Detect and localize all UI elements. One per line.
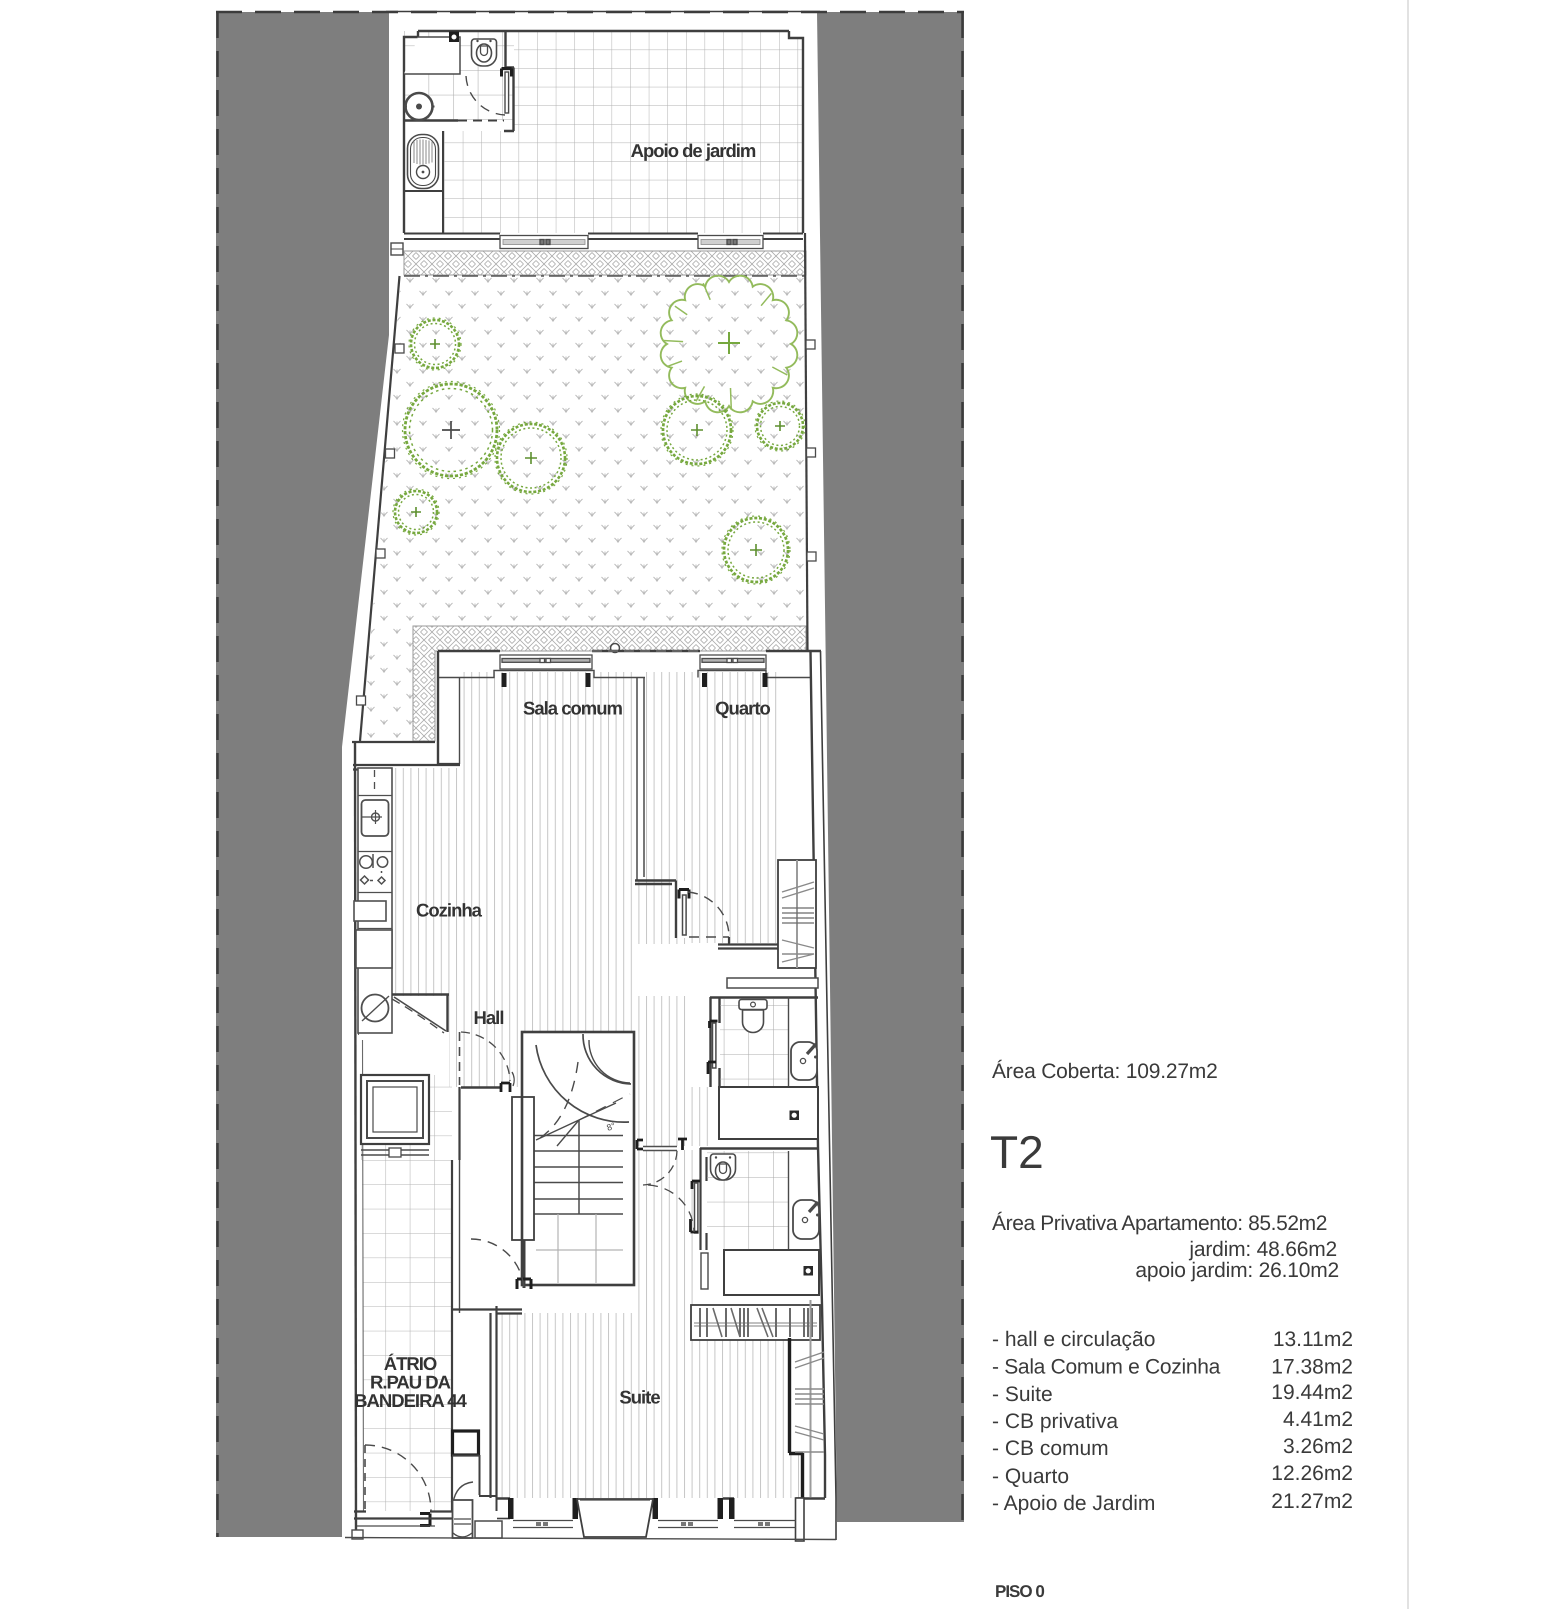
svg-text:PISO 0: PISO 0 (995, 1582, 1044, 1601)
svg-text:13.11m2: 13.11m2 (1273, 1328, 1353, 1351)
svg-text:Hall: Hall (474, 1007, 504, 1028)
svg-text:- CB comum: - CB comum (992, 1437, 1109, 1460)
svg-text:- Quarto: - Quarto (992, 1465, 1069, 1488)
svg-text:- Apoio de Jardim: - Apoio de Jardim (992, 1492, 1155, 1515)
svg-text:Área Coberta: 109.27m2: Área Coberta: 109.27m2 (992, 1059, 1218, 1083)
svg-text:19.44m2: 19.44m2 (1271, 1381, 1353, 1404)
svg-text:12.26m2: 12.26m2 (1271, 1462, 1353, 1485)
svg-text:21.27m2: 21.27m2 (1271, 1490, 1353, 1513)
svg-text:apoio jardim: 26.10m2: apoio jardim: 26.10m2 (1135, 1259, 1339, 1282)
svg-text:Suite: Suite (619, 1387, 660, 1408)
svg-text:- CB privativa: - CB privativa (992, 1410, 1118, 1433)
svg-text:- hall e circulação: - hall e circulação (992, 1328, 1155, 1351)
svg-text:Quarto: Quarto (715, 698, 770, 719)
svg-text:T2: T2 (990, 1126, 1044, 1178)
svg-text:4.41m2: 4.41m2 (1283, 1408, 1353, 1431)
svg-text:Apoio de jardim: Apoio de jardim (631, 140, 756, 161)
svg-text:Sala comum: Sala comum (523, 698, 623, 719)
svg-text:17.38m2: 17.38m2 (1271, 1356, 1353, 1379)
svg-text:- Suite: - Suite (992, 1383, 1053, 1406)
svg-text:- Sala Comum e Cozinha: - Sala Comum e Cozinha (992, 1356, 1221, 1379)
svg-text:Cozinha: Cozinha (416, 900, 483, 921)
svg-text:jardim: 48.66m2: jardim: 48.66m2 (1188, 1238, 1337, 1261)
svg-text:3.26m2: 3.26m2 (1283, 1435, 1353, 1458)
svg-text:BANDEIRA 44: BANDEIRA 44 (354, 1390, 467, 1411)
svg-text:Área Privativa Apartamento: 85: Área Privativa Apartamento: 85.52m2 (992, 1211, 1327, 1235)
